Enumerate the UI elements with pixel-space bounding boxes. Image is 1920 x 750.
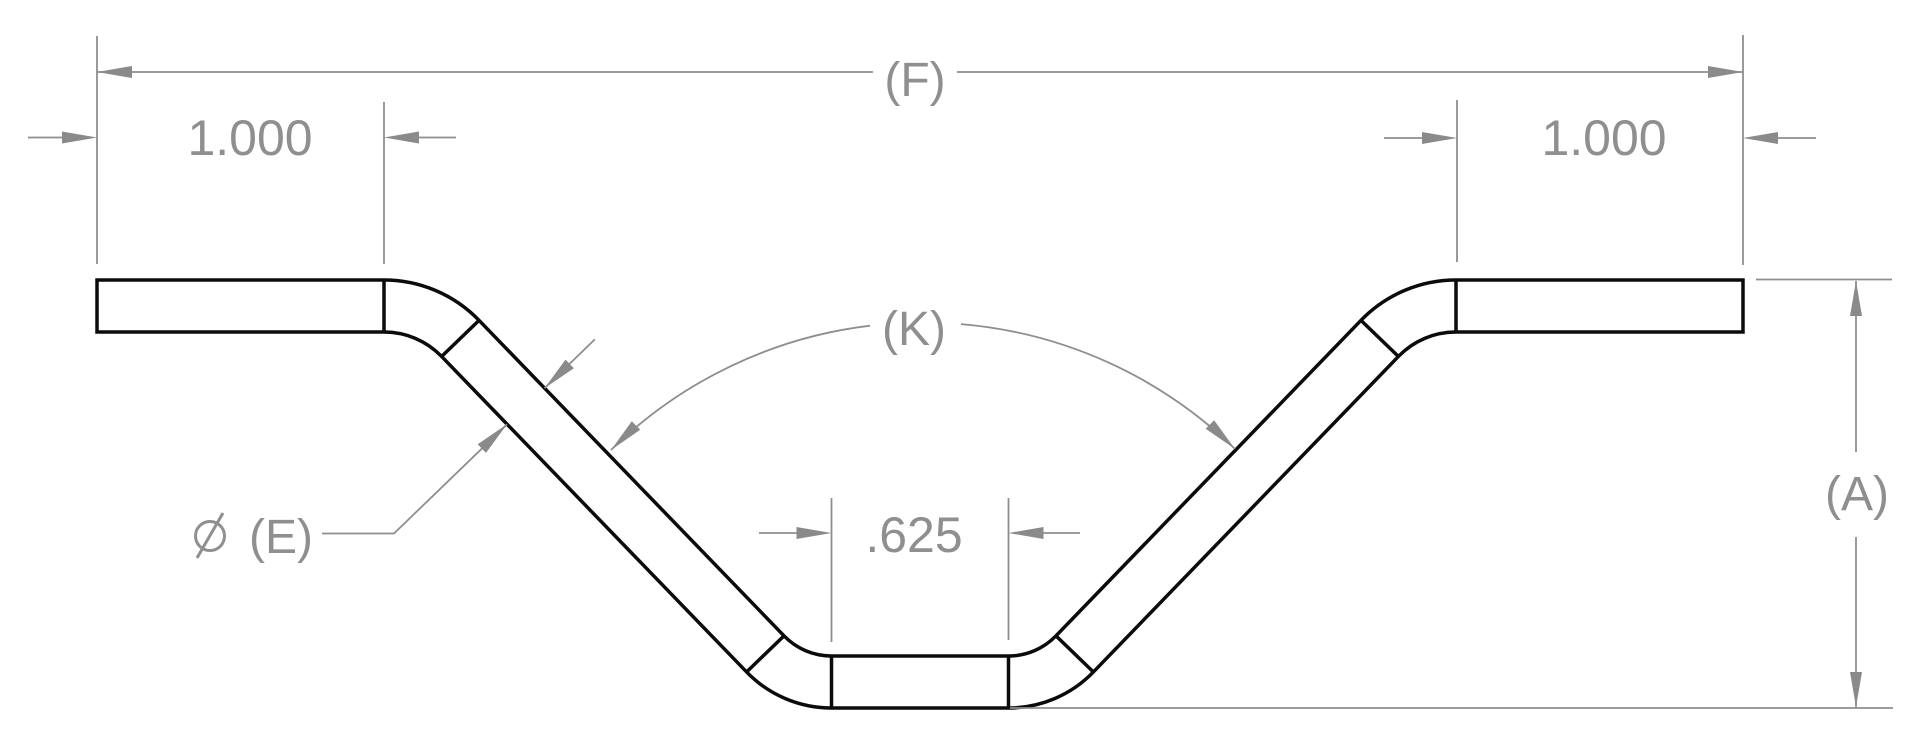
svg-text:1.000: 1.000 <box>1541 110 1666 166</box>
svg-text:(A): (A) <box>1825 468 1889 521</box>
svg-text:(E): (E) <box>249 511 313 564</box>
svg-text:(F): (F) <box>884 54 945 107</box>
svg-text:.625: .625 <box>865 507 962 563</box>
svg-text:1.000: 1.000 <box>187 110 312 166</box>
svg-text:(K): (K) <box>882 303 946 356</box>
